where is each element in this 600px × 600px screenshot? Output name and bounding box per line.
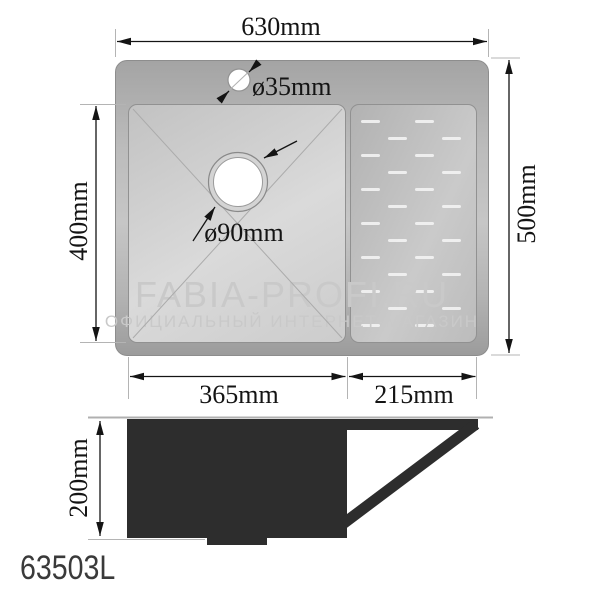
drainboard-rib: [361, 222, 380, 225]
dim-label-bowl-height: 400mm: [64, 171, 94, 271]
drainboard-rib: [388, 239, 407, 242]
drainboard-rib: [415, 222, 434, 225]
drain-hole-diameter-label: ø90mm: [194, 218, 294, 248]
drainboard-rib: [442, 137, 461, 140]
dim-label-overall-width: 630mm: [231, 12, 331, 42]
sink-dimension-drawing: FABIA-PROFI.RU ОФИЦИАЛЬНЫЙ ИНТЕРНЕТ-МАГА…: [0, 0, 600, 600]
drainboard-rib: [415, 120, 434, 123]
side-profile: [88, 418, 493, 546]
drainboard-rib: [415, 154, 434, 157]
drainboard-rib: [442, 239, 461, 242]
drainboard-rib: [388, 137, 407, 140]
dim-label-bowl-width: 365mm: [189, 380, 289, 410]
drainboard-rib: [361, 120, 380, 123]
faucet-hole-diameter-label: ø35mm: [252, 72, 331, 102]
model-number-label: 63503L: [20, 549, 115, 588]
dim-label-overall-depth: 500mm: [512, 154, 542, 254]
drainboard-rib: [442, 171, 461, 174]
drainboard-rib: [361, 154, 380, 157]
drainboard-rib: [388, 205, 407, 208]
drainboard-rib: [361, 256, 380, 259]
drainboard-rib: [415, 256, 434, 259]
drainboard-rib: [415, 188, 434, 191]
dim-label-bowl-depth: 200mm: [64, 428, 94, 528]
watermark-subtitle: ОФИЦИАЛЬНЫЙ ИНТЕРНЕТ-МАГАЗИН: [0, 312, 592, 332]
drainboard-rib: [388, 171, 407, 174]
drainboard-rib: [361, 188, 380, 191]
watermark-site-name: FABIA-PROFI.RU: [0, 274, 592, 316]
dim-label-drainboard-width: 215mm: [364, 380, 464, 410]
drainboard-rib: [442, 205, 461, 208]
